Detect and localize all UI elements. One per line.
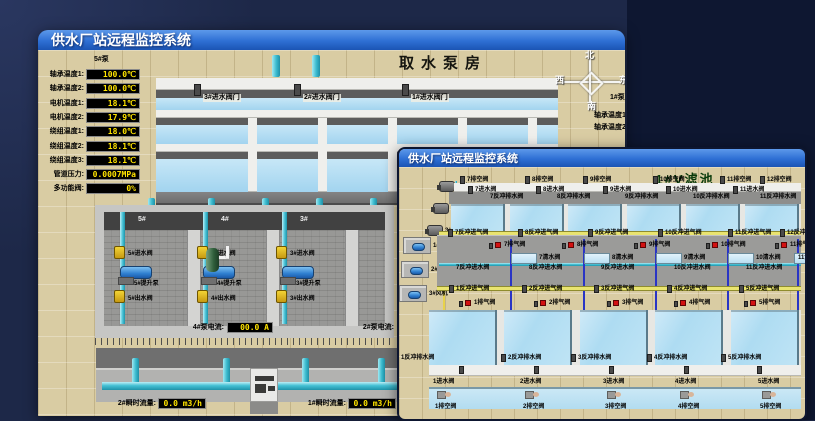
pump-bay-label: 3#	[300, 216, 308, 223]
air-release-valve-label: 9排气阀	[649, 242, 670, 249]
drain-valve-icon[interactable]	[720, 176, 725, 184]
backwash-air-valve-icon[interactable]	[594, 285, 599, 293]
drain-valve-icon[interactable]	[653, 176, 658, 184]
flow-meter-pipe-icon	[255, 384, 266, 393]
filter-cell	[568, 204, 622, 232]
blower-icon[interactable]	[403, 237, 431, 254]
drain-valve-label: 11排空阀	[727, 177, 751, 184]
compass-east: 东	[619, 73, 625, 86]
inlet-valve-label: 7进水阀	[475, 187, 496, 194]
intake-gate-valve-label: 3#进水阀门	[203, 94, 241, 102]
surge-tank	[206, 248, 219, 272]
pump-panel-row-label: 绕组温度2:	[38, 143, 84, 152]
flow-meter-pipe-icon	[255, 376, 274, 381]
outlet-valve-label: 4#出水阀	[211, 296, 236, 303]
tick-strip	[95, 338, 394, 345]
inlet-valve-icon[interactable]	[468, 186, 473, 194]
clear-water-box	[584, 253, 610, 264]
backwash-drain-valve-label: 7反冲排水阀	[490, 194, 523, 201]
pump-panel-row-label: 轴承温度2:	[38, 85, 84, 94]
air-release-valve-icon[interactable]	[750, 300, 756, 306]
clear-water-valve-label: 7清水阀	[539, 255, 560, 262]
air-release-valve-icon[interactable]	[465, 300, 471, 306]
drain-valve-label: 2排空阀	[523, 404, 544, 411]
pipe-pillar	[272, 55, 280, 77]
pump-panel-row-label: 多功能阀:	[38, 185, 84, 194]
pipe-pillar	[312, 55, 320, 77]
backwash-water-valve-label: 8反冲进水阀	[529, 265, 562, 272]
filter-cell	[510, 204, 564, 232]
front-window-title: 供水厂站远程监控系统	[408, 150, 518, 166]
backwash-air-valve-label: 1反冲进气阀	[456, 286, 489, 293]
blower-icon[interactable]	[399, 285, 427, 302]
blower-icon[interactable]	[401, 261, 429, 278]
lift-pump-base	[280, 277, 296, 285]
pump-panel-value: 100.0℃	[86, 69, 140, 80]
inlet-valve-label: 5#进水阀	[128, 251, 153, 258]
basin-water-channel	[156, 125, 558, 144]
pump-room-divider	[188, 230, 200, 326]
air-release-valve-stem	[459, 301, 463, 307]
air-release-valve-icon[interactable]	[613, 300, 619, 306]
backwash-air-valve-icon[interactable]	[667, 285, 672, 293]
drain-elbow-tip	[533, 392, 539, 397]
walkway-valve-icon[interactable]	[684, 366, 689, 374]
right-panel-label: 轴承温度2:	[594, 124, 625, 132]
air-release-valve-label: 5排气阀	[759, 300, 780, 307]
filter-walkway	[429, 365, 801, 376]
backwash-drain-valve-label: 1反冲排水阀	[401, 355, 434, 362]
air-release-valve-stem	[607, 301, 611, 307]
pump-bay-label: 5#	[138, 216, 146, 223]
inlet-valve-icon[interactable]	[733, 186, 738, 194]
air-release-valve-label: 10排气阀	[721, 242, 746, 249]
blower-label: 3#风机	[429, 291, 448, 298]
air-release-valve-label: 4排气阀	[689, 300, 710, 307]
backwash-air-valve-icon[interactable]	[449, 285, 454, 293]
pump-panel-row-label: 绕组温度1:	[38, 128, 84, 137]
backwash-drain-valve-icon[interactable]	[571, 354, 576, 362]
compass-south: 南	[587, 99, 596, 112]
air-release-valve-label: 11排气阀	[790, 242, 805, 249]
basin-divider	[248, 118, 257, 192]
pump-panel-header: 5#泵	[94, 56, 109, 64]
pump-room-divider	[267, 230, 279, 326]
right-panel-header: 1#泵	[610, 94, 625, 102]
air-release-valve-icon[interactable]	[540, 300, 546, 306]
pump-panel-value: 100.0℃	[86, 83, 140, 94]
backwash-drain-valve-label: 2反冲排水阀	[508, 355, 541, 362]
outlet-valve-icon[interactable]	[114, 290, 125, 303]
backwash-air-valve-label: 4反冲进气阀	[674, 286, 707, 293]
outlet-valve-label: 5#出水阀	[128, 296, 153, 303]
filter-cell	[627, 204, 681, 232]
intake-gate-valve-icon[interactable]	[194, 84, 201, 96]
pump-panel-value: 18.1℃	[86, 155, 140, 166]
backwash-drain-valve-label: 3反冲排水阀	[578, 355, 611, 362]
pump-panel-value: 0.0007MPa	[86, 169, 140, 180]
backwash-air-valve-icon[interactable]	[588, 229, 593, 237]
air-release-valve-icon[interactable]	[680, 300, 686, 306]
pump-panel-row-label: 电机温度1:	[38, 100, 84, 109]
drain-valve-label: 10排空阀	[660, 177, 685, 184]
flow-label: 2#瞬时流量:	[88, 400, 156, 410]
backwash-drain-valve-icon[interactable]	[721, 354, 726, 362]
air-release-valve-stem	[562, 243, 566, 249]
backwash-drain-valve-icon[interactable]	[501, 354, 506, 362]
flow-value: 0.0 m3/h	[158, 398, 206, 409]
backwash-drain-valve-label: 11反冲排水阀	[760, 194, 796, 201]
basin-top-wall	[156, 78, 558, 90]
backwash-air-valve-icon[interactable]	[728, 229, 733, 237]
pump-current-label: 4#泵电流:	[156, 324, 224, 334]
clear-water-valve-label: 9清水阀	[684, 255, 705, 262]
basin-divider	[318, 118, 327, 192]
lift-pump-base	[201, 277, 217, 285]
basin-divider	[388, 118, 397, 192]
scene-title-intake: 取水泵房	[378, 52, 508, 73]
walkway-valve-icon[interactable]	[459, 366, 464, 374]
inlet-valve-icon[interactable]	[536, 186, 541, 194]
walkway-valve-icon[interactable]	[534, 366, 539, 374]
inlet-valve-icon[interactable]	[603, 186, 608, 194]
drain-valve-label: 1排空阀	[435, 404, 456, 411]
drain-valve-label: 3排空阀	[605, 404, 626, 411]
blower-pump	[412, 243, 425, 251]
drain-valve-label: 7排空阀	[467, 177, 488, 184]
backwash-air-valve-icon[interactable]	[448, 229, 453, 237]
inlet-valve-label: 1进水阀	[433, 379, 454, 386]
pump-cap	[425, 229, 429, 234]
air-release-valve-stem	[775, 243, 779, 249]
clear-water-valve-label: 11清水阀	[798, 255, 805, 262]
pump-room-back-wall	[104, 212, 385, 230]
filter-pool-scene: 1#V滤池 1#水泵2#水泵3#水泵1#风机2#风机3#风机7排空阀8排空阀9排…	[399, 167, 805, 419]
walkway-valve-icon[interactable]	[609, 366, 614, 374]
air-release-valve-icon[interactable]	[712, 242, 718, 248]
pump-cap	[437, 185, 441, 190]
backwash-air-valve-label: 5反冲进气阀	[746, 286, 779, 293]
drain-elbow-tip	[688, 392, 694, 397]
outlet-valve-label: 3#出水阀	[290, 296, 315, 303]
drain-valve-icon[interactable]	[460, 176, 465, 184]
backwash-air-valve-label: 10反冲进气阀	[665, 230, 702, 237]
clear-water-valve-label: 10清水阀	[756, 255, 781, 262]
backwash-water-valve-label: 10反冲进水阀	[674, 265, 711, 272]
intake-gate-valve-label: 1#进水阀门	[411, 94, 449, 102]
front-window[interactable]: 供水厂站远程监控系统 1#V滤池 1#水泵2#水泵3#水泵1#风机2#风机3#风…	[397, 147, 807, 421]
lift-pump-label: 5#提升泵	[134, 281, 159, 288]
outlet-valve-icon[interactable]	[276, 290, 287, 303]
inlet-valve-label: 10进水阀	[673, 187, 698, 194]
air-release-valve-icon[interactable]	[495, 242, 501, 248]
backwash-air-valve-label: 9反冲进气阀	[595, 230, 628, 237]
pump-panel-row-label: 绕组温度3:	[38, 157, 84, 166]
inlet-valve-label: 9进水阀	[610, 187, 631, 194]
pump-cap	[431, 207, 435, 212]
backwash-air-valve-label: 7反冲进气阀	[455, 230, 488, 237]
pump-current-value: 00.0 A	[227, 322, 273, 333]
air-release-valve-stem	[706, 243, 710, 249]
air-release-valve-icon[interactable]	[640, 242, 646, 248]
backwash-air-valve-icon[interactable]	[518, 229, 523, 237]
right-panel-label: 轴承温度1:	[594, 112, 625, 120]
pump-panel-value: 18.1℃	[86, 98, 140, 109]
blower-pump	[408, 291, 421, 299]
inlet-valve-icon[interactable]	[114, 246, 125, 259]
inlet-valve-label: 2进水阀	[520, 379, 541, 386]
drain-valve-label: 5排空阀	[760, 404, 781, 411]
air-release-valve-stem	[634, 243, 638, 249]
clear-water-box	[656, 253, 682, 264]
front-window-titlebar[interactable]: 供水厂站远程监控系统	[399, 149, 805, 167]
filter-cell	[686, 204, 740, 232]
drain-valve-label: 12排空阀	[767, 177, 792, 184]
pump-panel-value: 18.1℃	[86, 141, 140, 152]
air-release-valve-label: 2排气阀	[549, 300, 570, 307]
backwash-drain-valve-label: 5反冲排水阀	[728, 355, 761, 362]
back-window-titlebar[interactable]: 供水厂站远程监控系统	[38, 30, 625, 50]
backwash-air-valve-label: 11反冲进气阀	[735, 230, 771, 237]
backwash-drain-valve-label: 10反冲排水阀	[693, 194, 730, 201]
backwash-water-valve-label: 7反冲进水阀	[456, 265, 489, 272]
drain-valve-icon[interactable]	[525, 176, 530, 184]
intake-gate-valve-label: 2#进水阀门	[303, 94, 341, 102]
inlet-valve-label: 4进水阀	[675, 379, 696, 386]
backwash-air-valve-label: 12反冲进气阀	[787, 230, 805, 237]
inlet-valve-label: 5进水阀	[758, 379, 779, 386]
filter-cell	[745, 204, 799, 232]
flow-meter-base	[250, 402, 278, 414]
drain-valve-label: 4排空阀	[678, 404, 699, 411]
backwash-air-valve-label: 2反冲进气阀	[529, 286, 562, 293]
air-release-valve-icon[interactable]	[568, 242, 574, 248]
clear-water-valve-label: 8清水阀	[612, 255, 633, 262]
compass-north: 北	[585, 50, 594, 61]
inlet-valve-icon[interactable]	[666, 186, 671, 194]
top-filter-cells	[451, 204, 801, 232]
clear-water-box	[728, 253, 754, 264]
drain-elbow-tip	[615, 392, 621, 397]
inlet-valve-icon[interactable]	[276, 246, 287, 259]
compass-west: 西	[555, 73, 564, 86]
air-release-valve-stem	[744, 301, 748, 307]
white-pipe	[226, 246, 229, 258]
backwash-air-valve-icon[interactable]	[658, 229, 663, 237]
air-release-valve-label: 3排气阀	[622, 300, 643, 307]
air-release-valve-label: 1排气阀	[474, 300, 495, 307]
air-release-valve-stem	[534, 301, 538, 307]
air-release-valve-stem	[489, 243, 493, 249]
backwash-drain-valve-label: 9反冲排水阀	[625, 194, 658, 201]
backwash-drain-valve-icon[interactable]	[647, 354, 652, 362]
backwash-air-valve-icon[interactable]	[739, 285, 744, 293]
backwash-air-valve-icon[interactable]	[522, 285, 527, 293]
compass-icon	[579, 71, 603, 95]
air-release-valve-stem	[674, 301, 678, 307]
air-release-valve-label: 7排气阀	[504, 242, 525, 249]
water-pump-icon[interactable]	[433, 203, 449, 214]
pump-panel-value: 17.9℃	[86, 112, 140, 123]
basin-wall	[156, 118, 558, 125]
outlet-valve-icon[interactable]	[197, 290, 208, 303]
backwash-air-valve-icon[interactable]	[780, 229, 785, 237]
backwash-air-valve-label: 8反冲进气阀	[525, 230, 558, 237]
drain-valve-icon[interactable]	[760, 176, 765, 184]
drain-valve-label: 9排空阀	[590, 177, 611, 184]
inlet-valve-label: 8进水阀	[543, 187, 564, 194]
drain-valve-label: 8排空阀	[532, 177, 553, 184]
desktop: 供水厂站远程监控系统 取水泵房 3#进水阀门2#进水阀门1#进水阀门5#泵轴承温…	[0, 0, 815, 420]
pump-panel-row-label: 电机温度2:	[38, 114, 84, 123]
clear-water-box	[511, 253, 537, 264]
pump-current-label: 2#泵电流:	[326, 324, 394, 334]
pump-panel-row-label: 轴承温度1:	[38, 71, 84, 80]
flow-label: 1#瞬时流量:	[278, 400, 346, 410]
intake-gate-valve-icon[interactable]	[294, 84, 301, 96]
backwash-water-valve-label: 11反冲进水阀	[746, 265, 782, 272]
filter-cell	[429, 310, 497, 365]
filter-cell	[451, 204, 505, 232]
inlet-valve-label: 3进水阀	[603, 379, 624, 386]
drain-elbow-tip	[770, 392, 776, 397]
backwash-drain-valve-label: 8反冲排水阀	[557, 194, 590, 201]
lift-pump-label: 4#提升泵	[217, 281, 242, 288]
inlet-valve-label: 11进水阀	[740, 187, 764, 194]
flow-meter-pipe-icon	[268, 386, 275, 391]
intake-gate-valve-icon[interactable]	[402, 84, 409, 96]
pump-room-divider	[346, 230, 358, 326]
blower-pump	[410, 267, 423, 275]
pump-panel-row-label: 管道压力:	[38, 171, 84, 180]
air-release-valve-icon[interactable]	[781, 242, 787, 248]
pump-panel-value: 0%	[86, 183, 140, 194]
flow-value: 0.0 m3/h	[348, 398, 396, 409]
drain-valve-icon[interactable]	[583, 176, 588, 184]
lift-pump-label: 3#提升泵	[296, 281, 321, 288]
backwash-water-valve-label: 9反冲进水阀	[601, 265, 634, 272]
walkway-valve-icon[interactable]	[757, 366, 762, 374]
drain-elbow-tip	[445, 392, 451, 397]
backwash-drain-valve-label: 4反冲排水阀	[654, 355, 687, 362]
water-pump-icon[interactable]	[439, 181, 455, 192]
backwash-air-valve-label: 3反冲进气阀	[601, 286, 634, 293]
lift-pump-base	[118, 277, 134, 285]
basin-walkway	[156, 110, 558, 118]
inlet-valve-label: 3#进水阀	[290, 251, 315, 258]
air-release-valve-label: 8排气阀	[577, 242, 598, 249]
pump-panel-value: 18.0℃	[86, 126, 140, 137]
back-window-title: 供水厂站远程监控系统	[51, 30, 191, 50]
pump-bay-label: 4#	[221, 216, 229, 223]
flow-meter[interactable]	[250, 368, 278, 402]
